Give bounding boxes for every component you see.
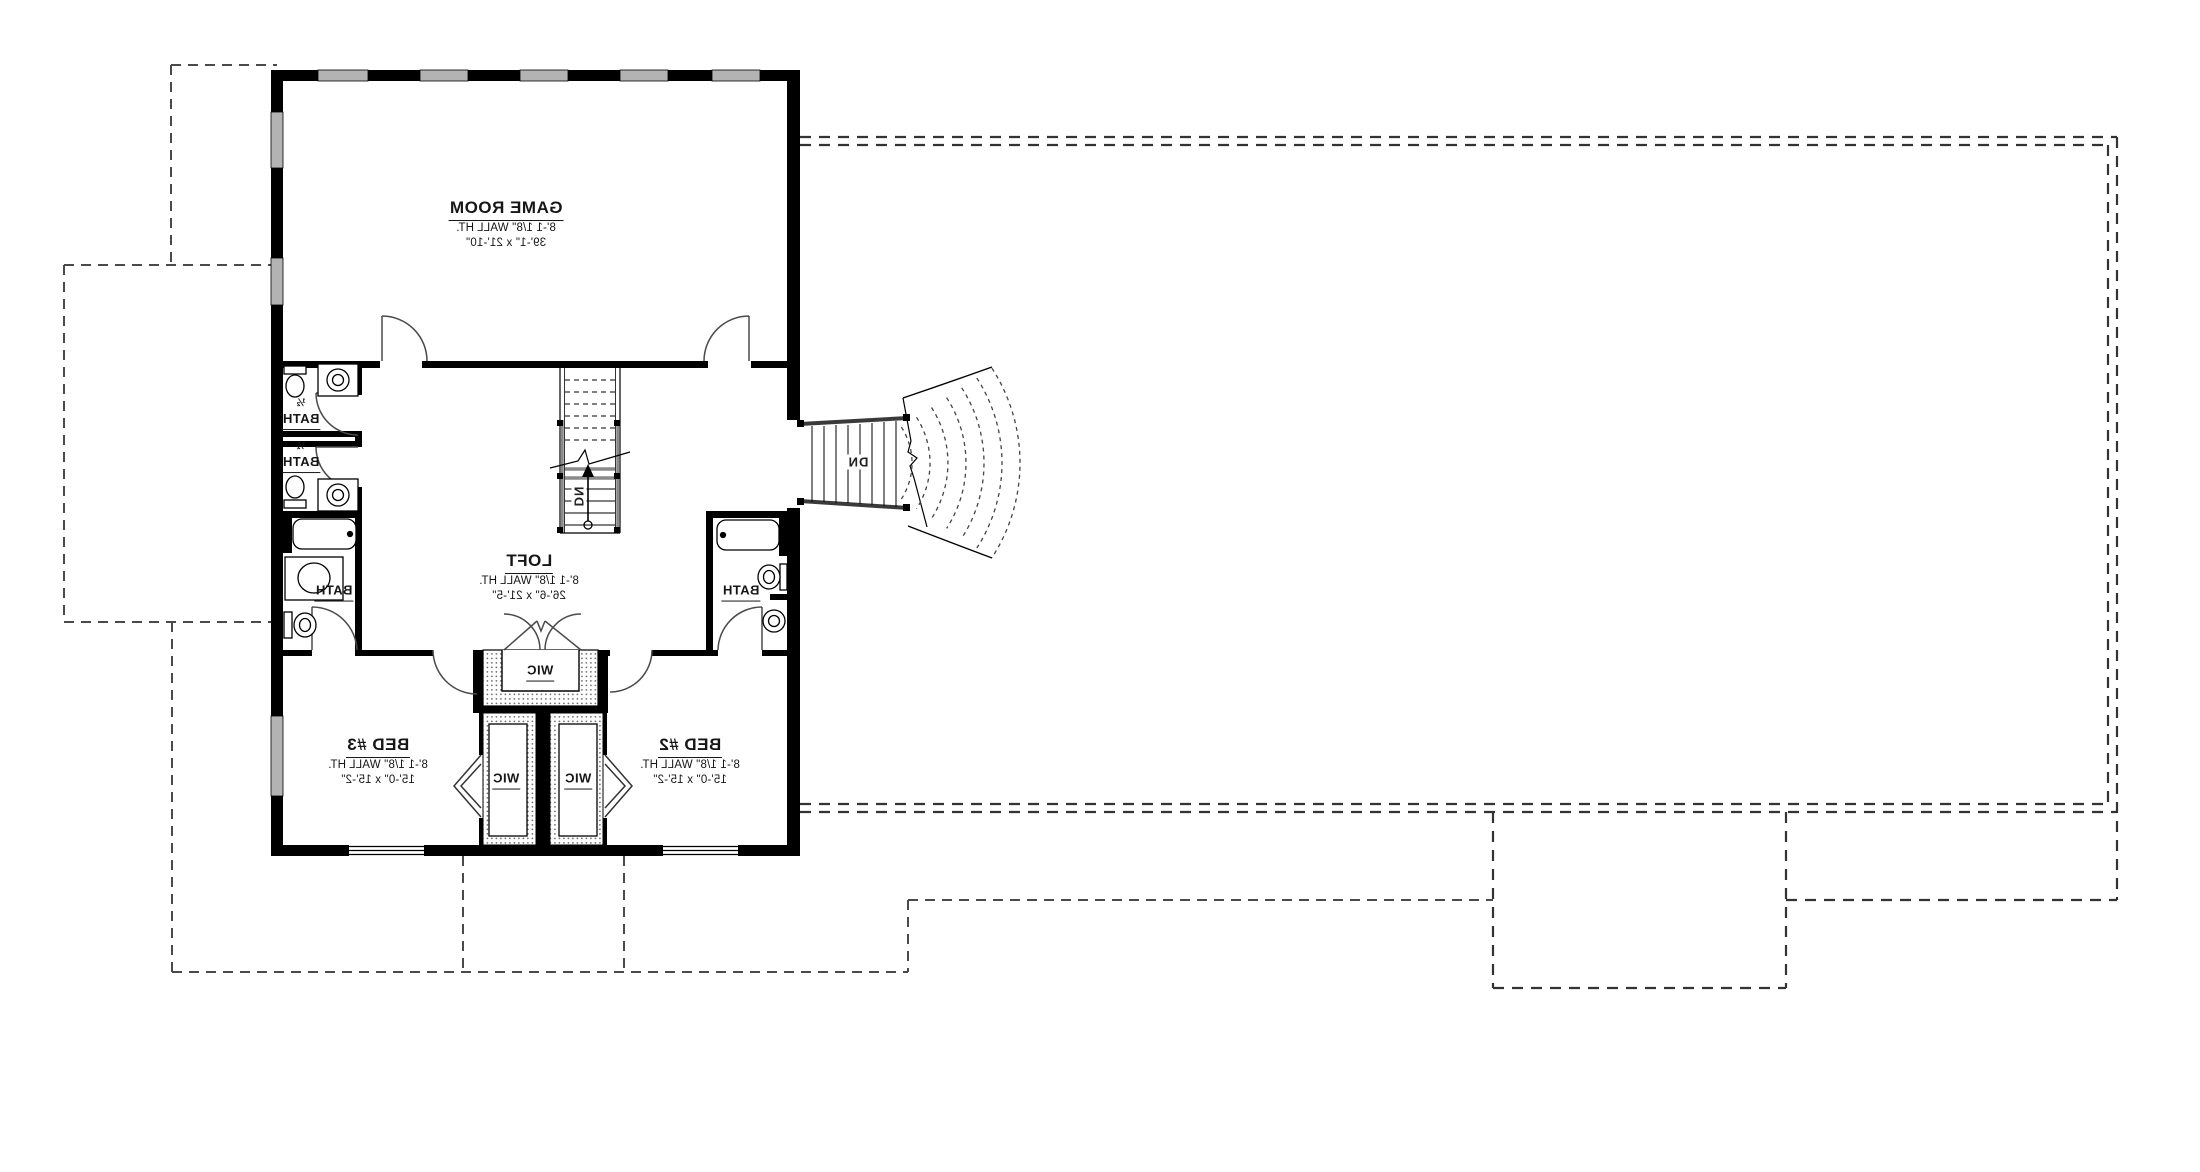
bath-right-title: BATH: [722, 583, 761, 602]
half-bath-upper-fraction: ½: [282, 398, 321, 409]
bed-3-label: BED #3 8'-1 1/8" WALL HT. 15'-0" x 15'-2…: [328, 734, 428, 788]
bed-2-dimensions: 15'-0" x 15'-2": [640, 773, 740, 788]
bed-3-wall-height: 8'-1 1/8" WALL HT.: [328, 758, 428, 773]
bath-left-title: BATH: [315, 583, 354, 602]
exterior-stair-dn-label: DN: [846, 455, 871, 470]
wic-top-title: WIC: [526, 663, 554, 682]
bed-2-title: BED #2: [658, 734, 723, 758]
game-room-wall-height: 8'-1 1/8" WALL HT.: [448, 221, 563, 236]
half-bath-upper-title: BATH: [282, 411, 321, 430]
half-bath-upper-label: ½ BATH: [282, 398, 321, 430]
wic-top-label: WIC: [526, 661, 554, 682]
bath-left-label: BATH: [315, 581, 354, 602]
half-bath-lower-label: ½ BATH: [282, 441, 321, 473]
loft-label: LOFT 8'-1 1/8" WALL HT. 26'-6" x 21'-5": [479, 550, 579, 604]
game-room-dimensions: 39'-1" x 21'-10": [448, 236, 563, 251]
loft-title: LOFT: [505, 550, 553, 574]
interior-stair: [550, 368, 630, 533]
exterior-stair: [797, 367, 1020, 558]
floor-plan-page: GAME ROOM 8'-1 1/8" WALL HT. 39'-1" x 21…: [0, 0, 2200, 1172]
bed-3-dimensions: 15'-0" x 15'-2": [328, 773, 428, 788]
roof-outline-right-dashed: [800, 137, 2117, 988]
wic-left-title: WIC: [492, 771, 520, 790]
wic-right-title: WIC: [564, 771, 592, 790]
half-bath-lower-fraction: ½: [282, 441, 321, 452]
bed-2-label: BED #2 8'-1 1/8" WALL HT. 15'-0" x 15'-2…: [640, 734, 740, 788]
bed-3-title: BED #3: [346, 734, 411, 758]
wic-left-label: WIC: [492, 769, 520, 790]
game-room-title: GAME ROOM: [448, 197, 563, 221]
interior-stair-dn-label: DN: [572, 485, 587, 508]
wic-right-label: WIC: [564, 769, 592, 790]
stair-fan-dashed: [901, 368, 1020, 558]
game-room-label: GAME ROOM 8'-1 1/8" WALL HT. 39'-1" x 21…: [448, 197, 563, 251]
bed-2-wall-height: 8'-1 1/8" WALL HT.: [640, 758, 740, 773]
loft-wall-height: 8'-1 1/8" WALL HT.: [479, 574, 579, 589]
bath-right-label: BATH: [722, 581, 761, 602]
half-bath-lower-title: BATH: [282, 454, 321, 473]
loft-dimensions: 26'-6" x 21'-5": [479, 589, 579, 604]
door-swings: [312, 316, 762, 694]
